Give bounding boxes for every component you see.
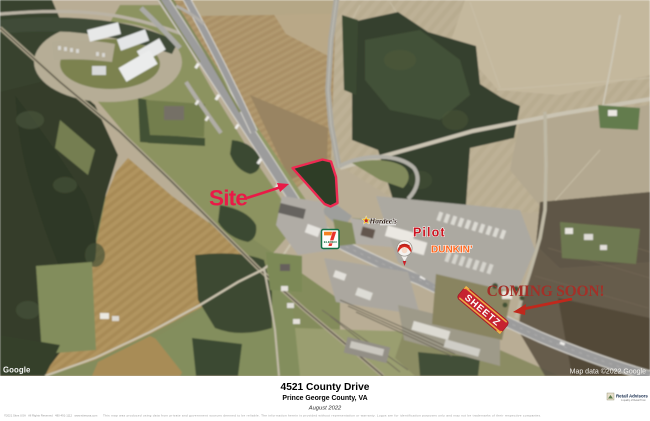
- svg-text:August 2022: August 2022: [308, 406, 342, 412]
- svg-text:Retail Advisors: Retail Advisors: [616, 394, 648, 399]
- svg-text:This map was produced using da: This map was produced using data from pr…: [103, 414, 542, 418]
- svg-text:Pilot: Pilot: [413, 226, 446, 240]
- svg-text:A quality of Retail Trust: A quality of Retail Trust: [621, 399, 646, 402]
- svg-text:Hardee’s: Hardee’s: [369, 217, 397, 226]
- svg-text:Site: Site: [209, 186, 247, 211]
- svg-text:Map data ©2022 Google: Map data ©2022 Google: [570, 368, 646, 376]
- svg-text:Google: Google: [3, 366, 31, 375]
- svg-text:ELEVEN: ELEVEN: [324, 240, 338, 244]
- svg-text:©2021 Sites USA All Rights R: ©2021 Sites USA All Rights Reserved 480-…: [4, 414, 98, 418]
- svg-text:COMING SOON!: COMING SOON!: [487, 283, 605, 300]
- svg-text:DUNKIN’: DUNKIN’: [431, 245, 473, 256]
- svg-text:4521 County Drive: 4521 County Drive: [281, 382, 370, 393]
- svg-text:Prince George County, VA: Prince George County, VA: [282, 395, 367, 402]
